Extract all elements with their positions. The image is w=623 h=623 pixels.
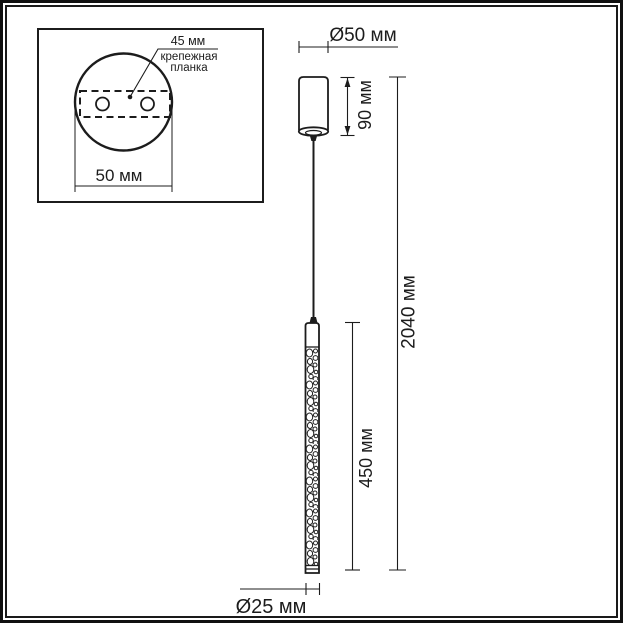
mounting-inset: 45 мм крепежная планка 50 мм <box>38 29 263 202</box>
technical-drawing-page: 45 мм крепежная планка 50 мм <box>0 0 623 623</box>
dimension-canopy-diameter: Ø50 мм <box>299 25 398 53</box>
pendant-fixture <box>299 77 328 573</box>
tube-hammered-texture <box>307 348 319 565</box>
pendant-lamp-dimension-drawing: 45 мм крепежная планка 50 мм <box>0 0 623 623</box>
canopy-base-circle <box>75 54 172 151</box>
canopy-height-label: 90 мм <box>355 80 375 130</box>
screw-hole-right <box>141 98 154 111</box>
plate-width-label: 45 мм <box>171 34 206 48</box>
plate-name-line2: планка <box>170 62 208 74</box>
shade-length-label: 450 мм <box>356 428 376 488</box>
overall-height-label: 2040 мм <box>399 275 420 349</box>
dimension-overall-height: 2040 мм <box>389 77 420 570</box>
inset-border <box>38 29 263 202</box>
canopy-bottom-rim <box>299 127 328 135</box>
dimension-canopy-height: 90 мм <box>341 78 376 136</box>
base-width-label: 50 мм <box>95 166 142 185</box>
dimension-shade-diameter: Ø25 мм <box>236 583 320 618</box>
shade-diameter-label: Ø25 мм <box>236 596 307 618</box>
dim-arrow-up <box>345 78 351 87</box>
screw-hole-left <box>96 98 109 111</box>
dimension-shade-length: 450 мм <box>345 323 376 571</box>
mounting-plate-outline <box>80 91 170 117</box>
canopy-diameter-label: Ø50 мм <box>329 25 396 46</box>
canopy-body <box>299 77 328 130</box>
dim-arrow-down <box>345 126 351 135</box>
